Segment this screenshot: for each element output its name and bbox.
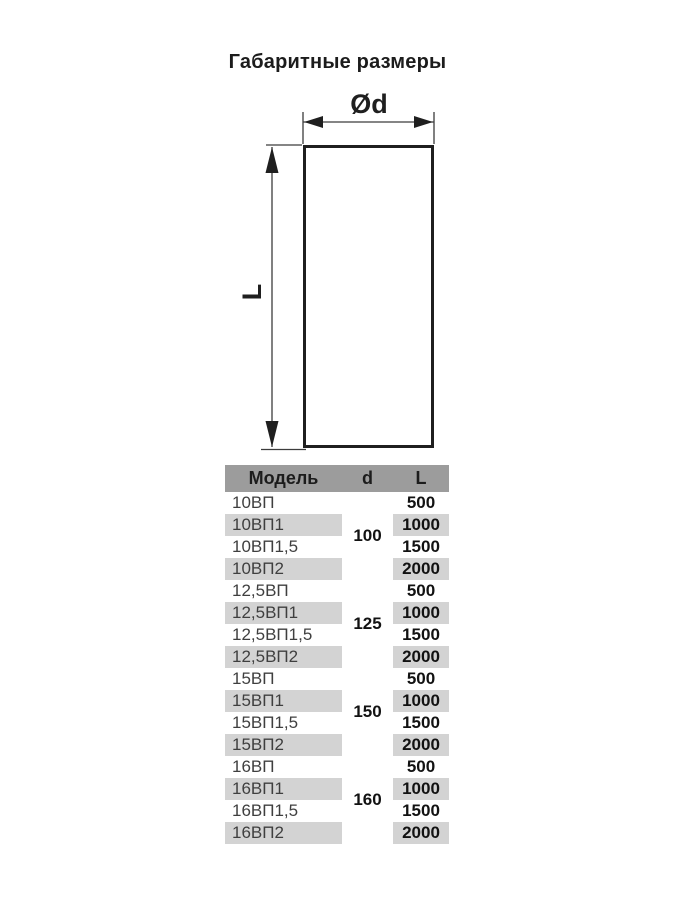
table-row: 10ВП2 2000 [225,558,449,580]
l-value-cell: 1000 [393,690,449,712]
l-value-cell: 500 [393,756,449,778]
length-arrow-down-icon [266,421,279,447]
model-cell: 15ВП2 [225,734,342,756]
model-cell: 10ВП2 [225,558,342,580]
model-cell: 16ВП1 [225,778,342,800]
model-cell: 16ВП1,5 [225,800,342,822]
table-row: 16ВП2 2000 [225,822,449,844]
table-row: 15ВП 150 500 [225,668,449,690]
table-row: 12,5ВП2 2000 [225,646,449,668]
l-value-cell: 1500 [393,712,449,734]
l-value-cell: 500 [393,668,449,690]
d-value-cell: 160 [342,756,393,844]
l-value-cell: 500 [393,492,449,514]
header-l: L [393,465,449,492]
table-header-row: Модель d L [225,465,449,492]
table-row: 10ВП1,5 1500 [225,536,449,558]
diameter-arrow-left-icon [304,116,323,128]
model-cell: 15ВП1 [225,690,342,712]
l-value-cell: 2000 [393,822,449,844]
product-outline-rect [305,147,433,447]
dimensions-table: Модель d L 10ВП 100 500 10ВП1 1000 10ВП1… [225,465,449,844]
diameter-label: Ød [350,89,388,119]
length-label: L [237,284,267,301]
model-cell: 12,5ВП [225,580,342,602]
l-value-cell: 1500 [393,624,449,646]
model-cell: 10ВП [225,492,342,514]
l-value-cell: 2000 [393,646,449,668]
table-row: 10ВП1 1000 [225,514,449,536]
l-value-cell: 1000 [393,602,449,624]
model-cell: 12,5ВП1 [225,602,342,624]
d-value-cell: 125 [342,580,393,668]
l-value-cell: 1000 [393,778,449,800]
l-value-cell: 1000 [393,514,449,536]
model-cell: 12,5ВП2 [225,646,342,668]
l-value-cell: 500 [393,580,449,602]
table-row: 15ВП1,5 1500 [225,712,449,734]
model-cell: 16ВП [225,756,342,778]
page: Габаритные размеры Ød L Модель d L 10ВП … [0,0,675,900]
model-cell: 15ВП1,5 [225,712,342,734]
l-value-cell: 2000 [393,734,449,756]
l-value-cell: 1500 [393,536,449,558]
header-model: Модель [225,465,342,492]
table-row: 12,5ВП1,5 1500 [225,624,449,646]
d-value-cell: 100 [342,492,393,580]
model-cell: 10ВП1,5 [225,536,342,558]
model-cell: 12,5ВП1,5 [225,624,342,646]
table-row: 16ВП1 1000 [225,778,449,800]
model-cell: 16ВП2 [225,822,342,844]
table-row: 16ВП1,5 1500 [225,800,449,822]
length-arrow-up-icon [266,147,279,173]
table-row: 12,5ВП 125 500 [225,580,449,602]
model-cell: 10ВП1 [225,514,342,536]
l-value-cell: 2000 [393,558,449,580]
table-row: 12,5ВП1 1000 [225,602,449,624]
diameter-arrow-right-icon [414,116,433,128]
table-row: 15ВП1 1000 [225,690,449,712]
table-row: 10ВП 100 500 [225,492,449,514]
table-row: 16ВП 160 500 [225,756,449,778]
header-d: d [342,465,393,492]
model-cell: 15ВП [225,668,342,690]
dimension-diagram: Ød L [0,0,675,470]
table-row: 15ВП2 2000 [225,734,449,756]
l-value-cell: 1500 [393,800,449,822]
d-value-cell: 150 [342,668,393,756]
